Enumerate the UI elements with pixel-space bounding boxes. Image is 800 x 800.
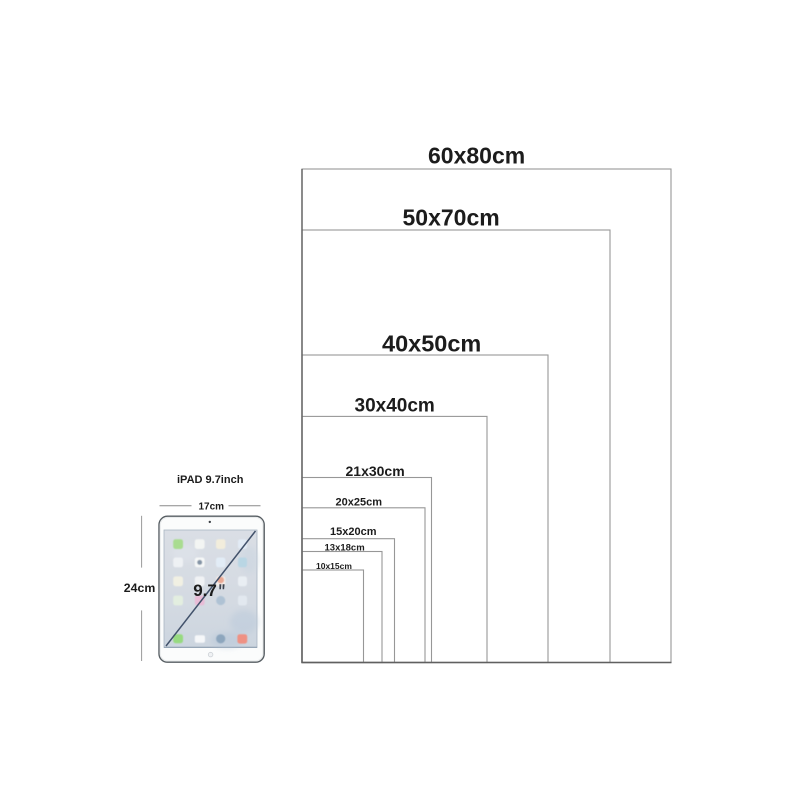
svg-text:17cm: 17cm [199,502,225,513]
svg-text:50x70cm: 50x70cm [403,205,500,231]
svg-text:15x20cm: 15x20cm [330,526,377,538]
svg-text:40x50cm: 40x50cm [382,331,481,357]
svg-text:iPAD 9.7inch: iPAD 9.7inch [177,474,244,486]
svg-text:21x30cm: 21x30cm [346,463,405,479]
svg-text:10x15cm: 10x15cm [316,561,352,571]
svg-text:13x18cm: 13x18cm [325,543,365,554]
svg-text:20x25cm: 20x25cm [336,497,383,509]
svg-text:9.7: 9.7 [193,581,217,600]
svg-text:24cm: 24cm [124,581,156,595]
svg-text:60x80cm: 60x80cm [428,143,525,169]
svg-text:30x40cm: 30x40cm [355,396,435,417]
